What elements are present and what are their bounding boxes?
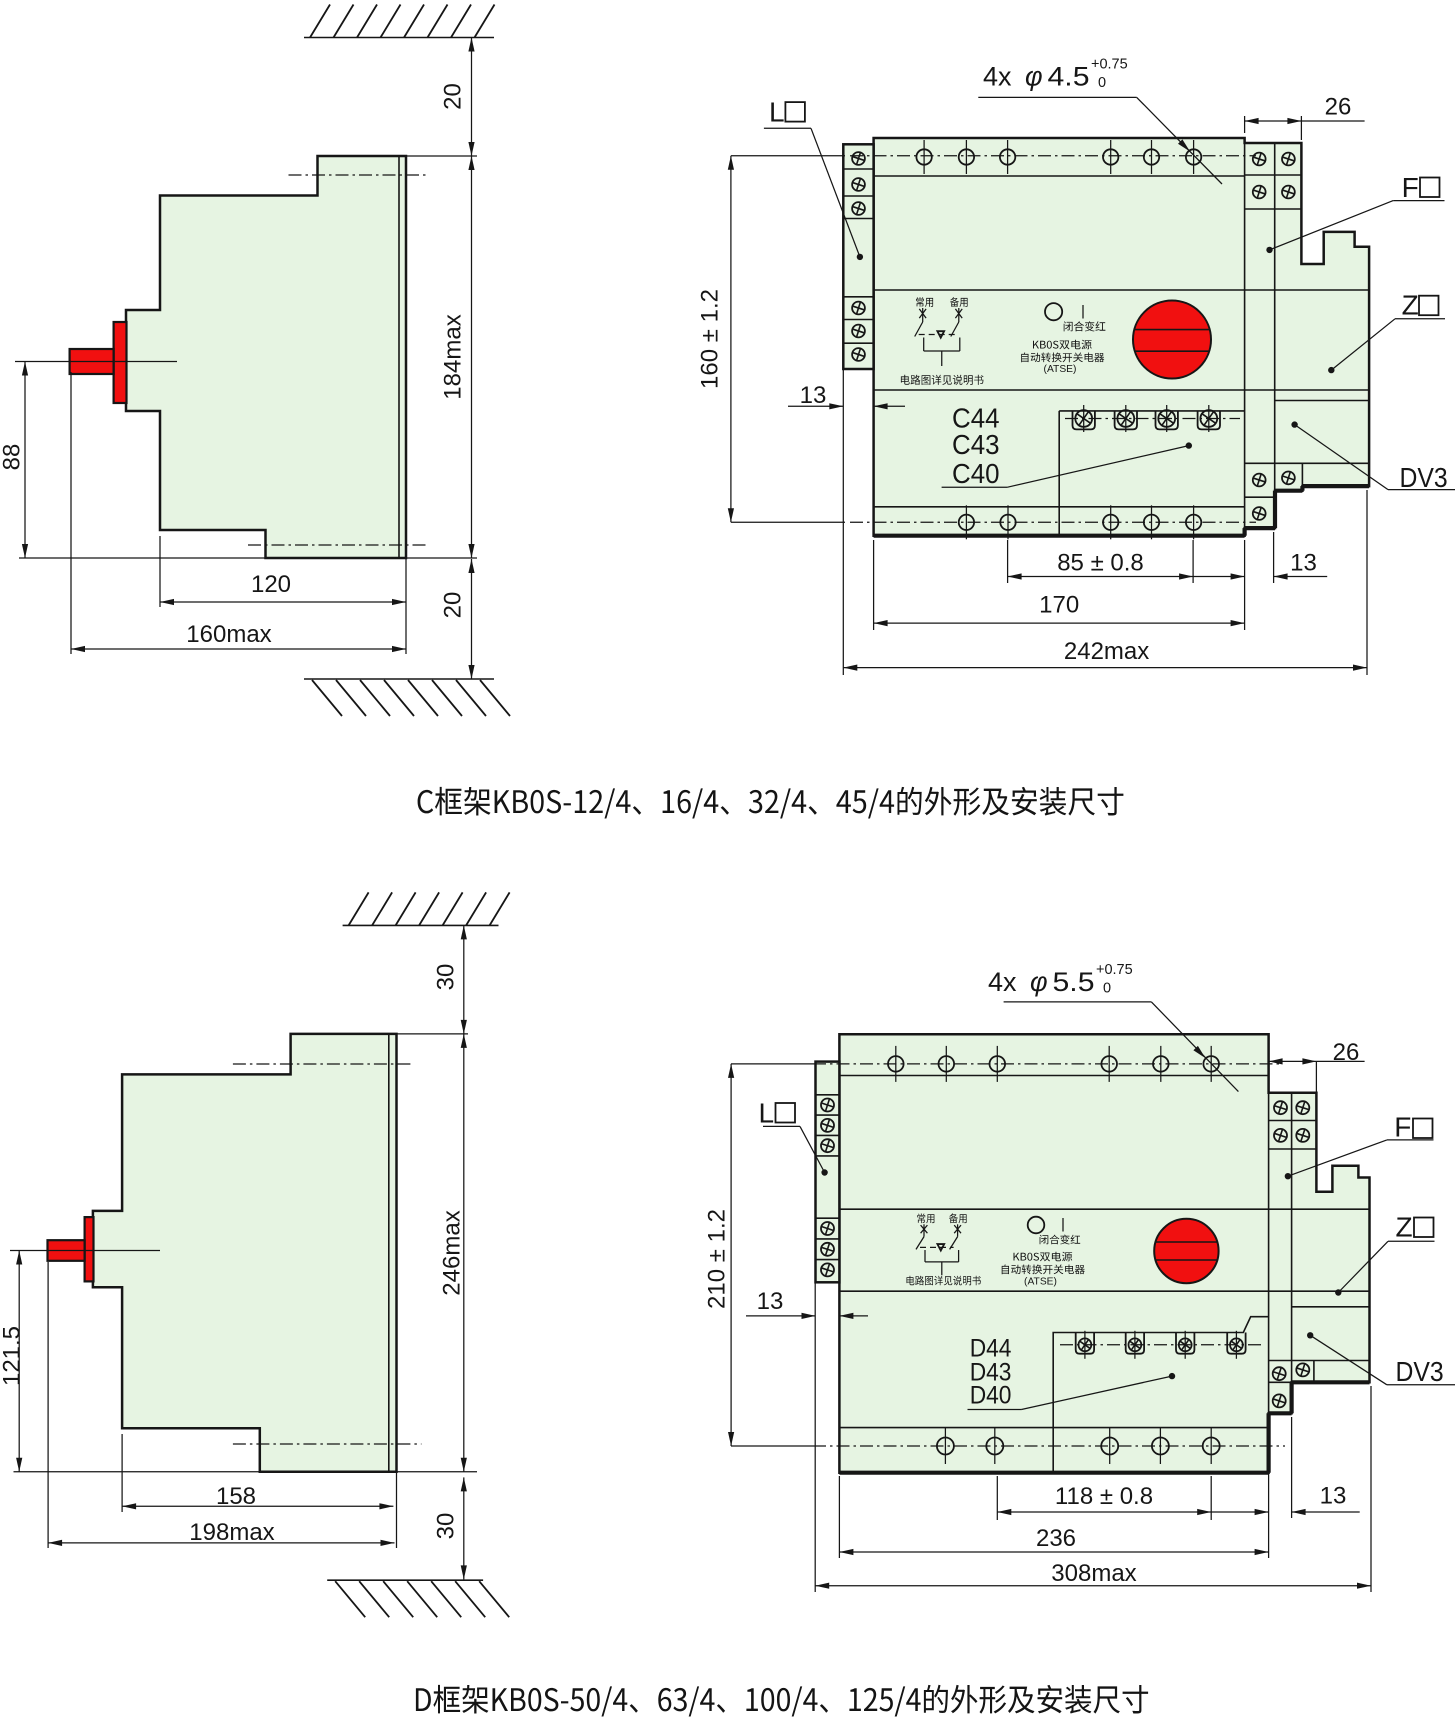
svg-text:D40: D40 [970,1382,1012,1410]
svg-text:L: L [759,1098,775,1129]
svg-text:242max: 242max [1064,638,1149,665]
svg-text:F: F [1394,1112,1411,1143]
svg-text:(ATSE): (ATSE) [1024,1276,1057,1288]
svg-text:13: 13 [1290,550,1317,577]
svg-text:13: 13 [757,1288,784,1315]
svg-text:(ATSE): (ATSE) [1044,363,1077,375]
svg-text:160 ± 1.2: 160 ± 1.2 [697,289,724,389]
svg-text:246max: 246max [439,1210,466,1295]
svg-text:30: 30 [433,1513,460,1540]
svg-text:160max: 160max [186,621,271,648]
svg-text:118 ± 0.8: 118 ± 0.8 [1055,1483,1153,1510]
svg-text:158: 158 [216,1483,256,1510]
svg-text:DV3: DV3 [1396,1356,1444,1387]
svg-text:20: 20 [440,83,467,110]
svg-text:13: 13 [1320,1483,1347,1510]
svg-text:DV3: DV3 [1400,462,1448,493]
svg-text:198max: 198max [189,1519,274,1546]
svg-text:4xφ5.5: 4xφ5.5 [988,967,1095,997]
svg-text:0: 0 [1103,981,1111,997]
svg-text:26: 26 [1333,1039,1360,1066]
svg-text:+0.75: +0.75 [1091,57,1128,73]
svg-text:184max: 184max [440,314,467,399]
svg-text:30: 30 [433,964,460,991]
svg-text:4xφ4.5: 4xφ4.5 [983,62,1090,92]
svg-text:C43: C43 [952,429,1000,460]
svg-text:Z: Z [1396,1212,1413,1243]
svg-text:308max: 308max [1051,1560,1136,1587]
svg-text:26: 26 [1325,94,1352,121]
svg-text:+0.75: +0.75 [1096,962,1133,978]
svg-text:C40: C40 [952,458,1000,489]
svg-text:236: 236 [1036,1525,1076,1552]
svg-text:120: 120 [251,571,291,598]
svg-text:L: L [769,96,785,127]
svg-text:88: 88 [0,444,26,471]
svg-text:F: F [1402,172,1419,203]
svg-text:Z: Z [1402,290,1419,321]
svg-text:85 ± 0.8: 85 ± 0.8 [1057,550,1144,577]
svg-text:170: 170 [1039,592,1079,619]
svg-text:121.5: 121.5 [0,1326,26,1386]
svg-text:0: 0 [1098,75,1106,91]
svg-text:210 ± 1.2: 210 ± 1.2 [704,1209,731,1309]
svg-text:20: 20 [440,592,467,619]
svg-text:13: 13 [800,382,827,409]
